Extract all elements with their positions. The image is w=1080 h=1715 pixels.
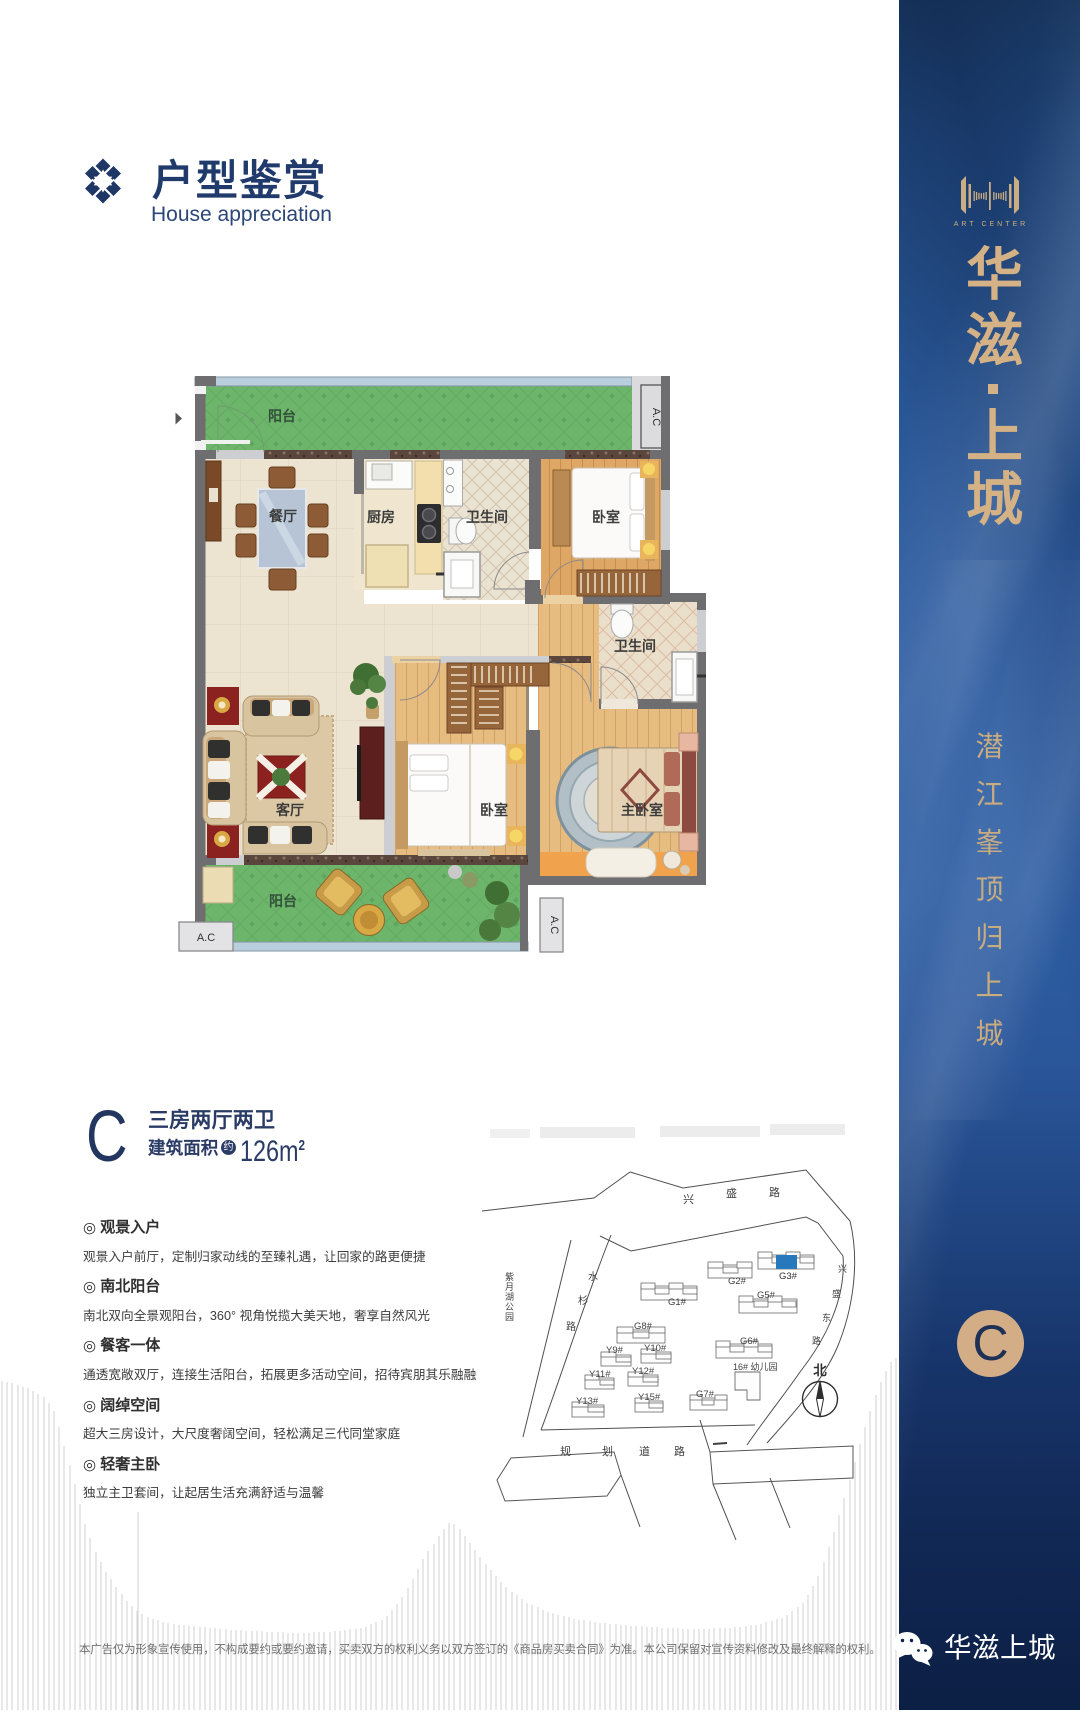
svg-text:G6#: G6# [740,1336,759,1347]
svg-text:阳台: 阳台 [269,893,297,909]
svg-text:G1#: G1# [668,1297,687,1308]
svg-text:G2#: G2# [728,1276,747,1287]
svg-text:16# 幼儿园: 16# 幼儿园 [733,1361,778,1372]
svg-text:餐厅: 餐厅 [268,508,297,524]
svg-text:划: 划 [602,1445,613,1458]
svg-text:A.C: A.C [650,408,662,426]
svg-text:道: 道 [639,1444,650,1458]
svg-text:北: 北 [813,1363,827,1378]
svg-text:紫月湖公园: 紫月湖公园 [504,1272,514,1322]
svg-text:G7#: G7# [696,1389,715,1400]
svg-text:杉: 杉 [578,1294,588,1307]
svg-text:A.C: A.C [197,932,215,944]
svg-text:厨房: 厨房 [367,509,395,525]
svg-text:路: 路 [812,1335,821,1346]
svg-text:Y9#: Y9# [606,1345,624,1356]
svg-text:阳台: 阳台 [268,408,296,424]
svg-text:卫生间: 卫生间 [614,638,656,654]
svg-text:G3#: G3# [779,1271,798,1282]
svg-text:G8#: G8# [634,1321,653,1332]
svg-text:路: 路 [769,1186,780,1199]
svg-text:卧室: 卧室 [592,509,620,525]
svg-text:Y11#: Y11# [589,1369,611,1380]
svg-text:盛: 盛 [832,1288,841,1299]
svg-text:盛: 盛 [726,1186,737,1200]
svg-text:Y15#: Y15# [638,1392,661,1403]
svg-text:Y10#: Y10# [644,1343,667,1354]
svg-text:水: 水 [588,1271,598,1283]
svg-text:ART CENTER: ART CENTER [954,221,1028,228]
svg-text:路: 路 [674,1445,685,1458]
svg-text:A.C: A.C [548,916,560,934]
svg-text:卧室: 卧室 [480,802,508,818]
svg-text:Y12#: Y12# [632,1366,655,1377]
svg-text:东: 东 [822,1312,831,1323]
svg-text:规: 规 [560,1444,571,1458]
svg-text:卫生间: 卫生间 [466,509,508,525]
svg-text:主卧室: 主卧室 [621,802,663,818]
svg-text:客厅: 客厅 [275,802,304,818]
svg-text:G5#: G5# [757,1290,776,1301]
svg-text:路: 路 [566,1320,576,1333]
svg-text:兴: 兴 [838,1264,847,1274]
svg-text:Y13#: Y13# [576,1396,599,1407]
svg-text:兴: 兴 [683,1193,694,1206]
